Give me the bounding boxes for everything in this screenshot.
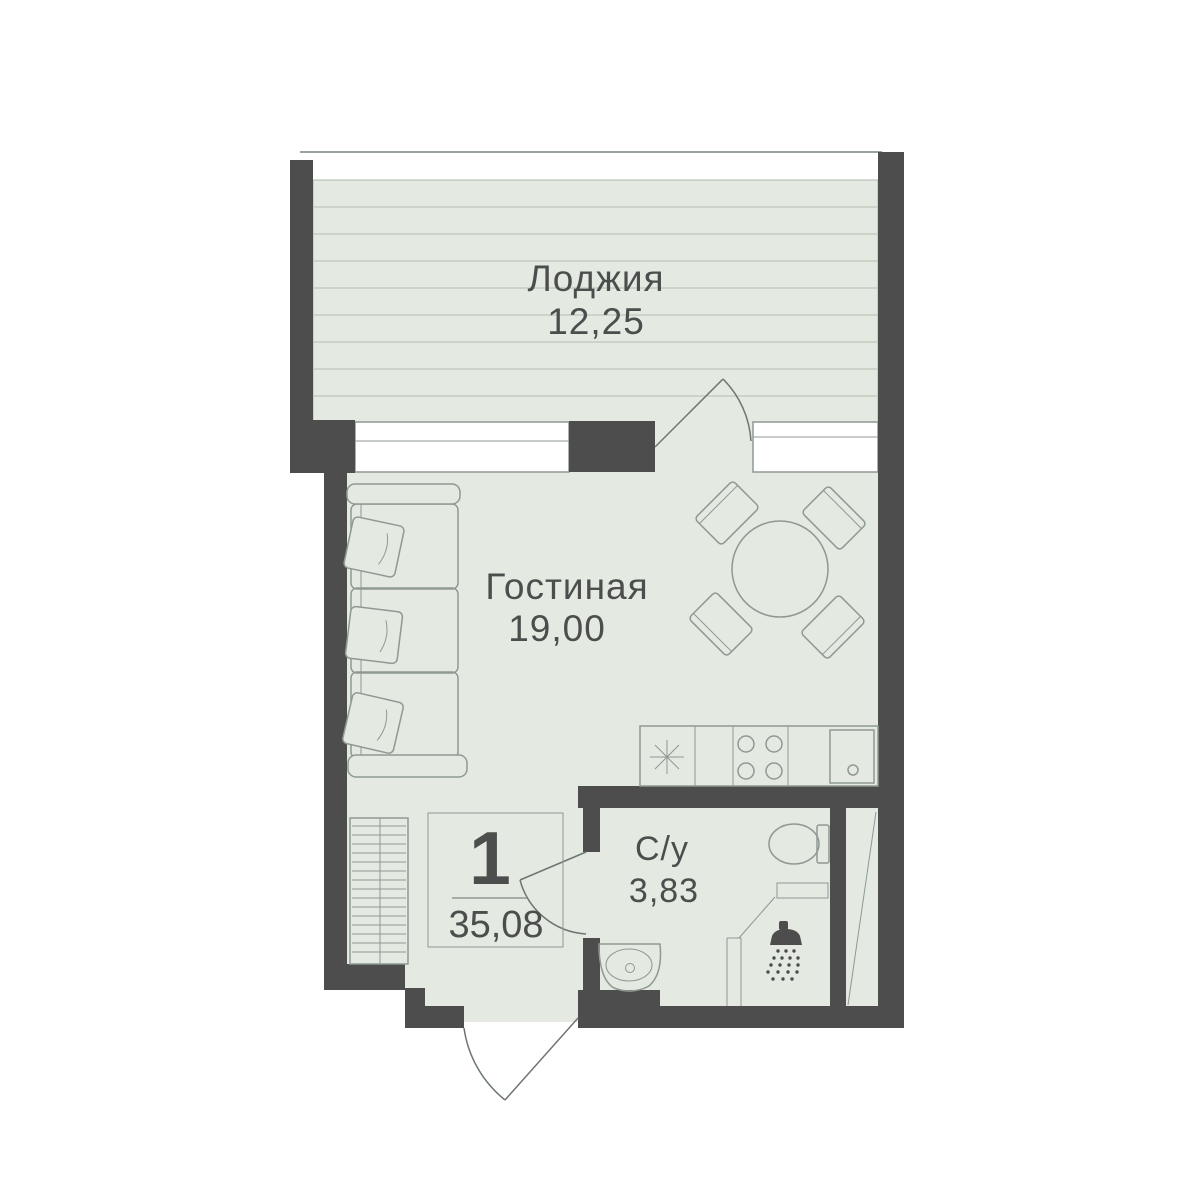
entrance-door-swing-arc [464,1028,505,1100]
sofa-armrest-top [347,484,460,504]
sofa-armrest-bottom [348,755,467,777]
window-left [355,422,569,472]
window-right [753,422,878,472]
living-room-label: Гостиная [485,566,648,607]
entrance-door-leaf [505,1018,578,1100]
wall-kitchen [578,786,878,808]
bathroom-label: С/у [635,830,689,868]
entrance-door [464,1018,578,1100]
rooms-count-stamp: 1 [469,816,511,900]
wall-step-1 [324,964,405,990]
wall-under-sink [578,990,660,1028]
sofa-pillow-1 [343,516,405,578]
floor-plan-page: 1 35,08 [0,0,1181,1181]
living-room-area: 19,00 [508,608,606,649]
wall-loggia-left [290,160,313,423]
wall-right [878,152,904,1028]
wall-window-pier [569,421,655,472]
balcony-door-threshold [655,416,753,472]
wall-step-3 [405,1006,464,1028]
wall-corner-block [290,420,355,473]
bathroom-area: 3,83 [629,872,699,910]
loggia-label: Лоджия [527,258,664,299]
total-area-stamp: 35,08 [448,904,543,946]
wall-left [324,471,347,966]
fridge-asterisk-icon [650,740,684,774]
wall-bath-left-upper [583,786,600,852]
wall-bath-left-lower [583,938,600,992]
round-dining-table [732,521,828,617]
floor-plan-canvas: 1 35,08 [0,0,1181,1181]
sofa-pillow-2 [345,606,403,664]
loggia-area: 12,25 [547,301,645,342]
wall-bath-right [830,808,846,1010]
sofa-pillow-3 [342,692,404,754]
